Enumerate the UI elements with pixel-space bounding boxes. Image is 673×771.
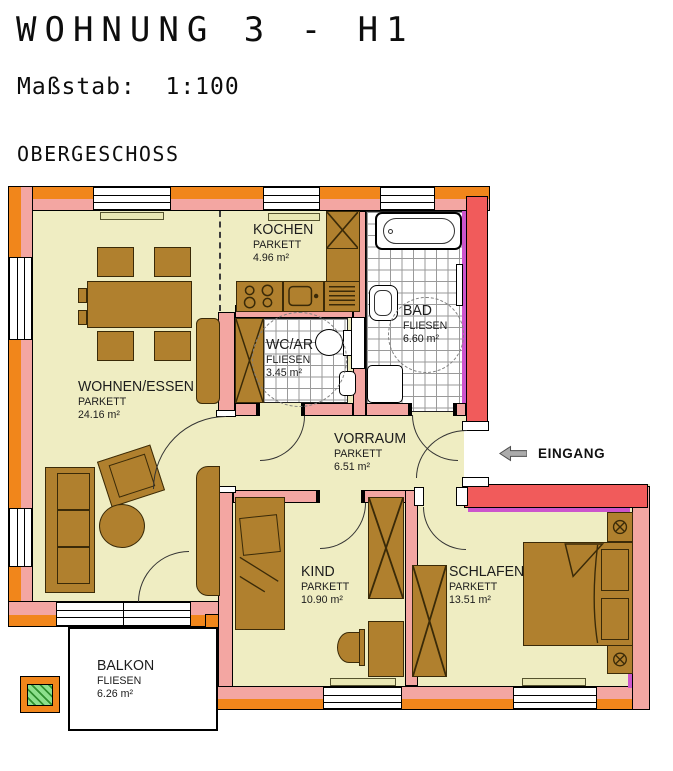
magenta-line-entry (468, 508, 630, 512)
nightstand (607, 645, 633, 674)
cabinet-x-front (327, 212, 358, 249)
towel-radiator (456, 264, 463, 306)
double-bed (523, 542, 633, 646)
kind-desk (368, 621, 404, 677)
room-label-kind: KIND PARKETT 10.90 m² (301, 564, 349, 606)
kitchen-tall-cabinet (326, 211, 360, 283)
bathtub (375, 212, 462, 250)
door-jamb (456, 487, 468, 506)
door-jamb (414, 487, 424, 506)
dining-bench (78, 310, 87, 325)
floor-plan: WOHNEN/ESSEN PARKETT 24.16 m² KOCHEN PAR… (0, 0, 673, 771)
open-door-leaf (351, 317, 365, 369)
dining-chair (154, 331, 191, 361)
radiator (100, 212, 164, 220)
stove (236, 281, 283, 312)
bath-right-red-wall (466, 196, 488, 431)
window-kitchen-top (263, 187, 320, 210)
nightstand (607, 512, 633, 542)
desk-chair (337, 632, 361, 663)
entrance-label: EINGANG (538, 446, 605, 461)
dish-drainer (324, 281, 360, 312)
entrance-red-wall-horizontal (464, 484, 648, 508)
dining-bench (78, 288, 87, 303)
door-jamb-tick (361, 490, 365, 503)
outside-area (650, 183, 673, 771)
window-living-left-lower (9, 508, 32, 567)
entrance-opening (464, 431, 490, 477)
door-jamb-tick (316, 490, 320, 503)
desk-chair-back (359, 629, 365, 666)
drain-marker (27, 684, 53, 706)
magenta-line-bath (462, 211, 466, 412)
radiator (522, 678, 586, 686)
window-schlafen-bottom (513, 687, 597, 709)
outside-area (488, 183, 673, 484)
dining-chair (97, 331, 134, 361)
schlafen-wardrobe (412, 565, 447, 677)
door-jamb-tick (256, 403, 260, 416)
kind-bed (235, 497, 285, 630)
balcony-door (56, 602, 191, 626)
room-label-kochen: KOCHEN PARKETT 4.96 m² (253, 222, 313, 264)
door-jamb (462, 477, 489, 487)
radiator (268, 213, 320, 221)
sofa (45, 467, 95, 593)
room-label-vorraum: VORRAUM PARKETT 6.51 m² (334, 431, 406, 473)
entrance-arrow-icon (499, 444, 527, 463)
window-living-left-upper (9, 257, 32, 340)
sideboard (196, 318, 220, 404)
room-label-bad: BAD FLIESEN 6.60 m² (403, 303, 447, 345)
window-kind-bottom (323, 687, 402, 709)
radiator (330, 678, 396, 686)
shower-tray (367, 365, 403, 403)
dining-chair (97, 247, 134, 277)
room-label-wcar: WC/AR FLIESEN 3.45 m² (266, 337, 313, 379)
dining-chair (154, 247, 191, 277)
kind-left-wall (218, 490, 233, 698)
room-label-balkon: BALKON FLIESEN 6.26 m² (97, 658, 154, 700)
kind-wardrobe (368, 497, 404, 599)
room-label-schlafen: SCHLAFEN PARKETT 13.51 m² (449, 564, 524, 606)
wc-west-wall-stub (218, 312, 235, 416)
window-living-top (93, 187, 171, 210)
bath-bottom-wall-left (366, 403, 411, 416)
coffee-table (99, 504, 145, 548)
room-label-wohnen: WOHNEN/ESSEN PARKETT 24.16 m² (78, 379, 194, 421)
dining-table (87, 281, 192, 328)
window-bath-top (380, 187, 435, 210)
floorplan-page: WOHNUNG 3 - H1 Maßstab: 1:100 OBERGESCHO… (0, 0, 673, 771)
kitchen-sink (283, 281, 324, 312)
right-exterior-wall (632, 486, 650, 710)
kitchen-divider-dashed-line (219, 211, 221, 311)
